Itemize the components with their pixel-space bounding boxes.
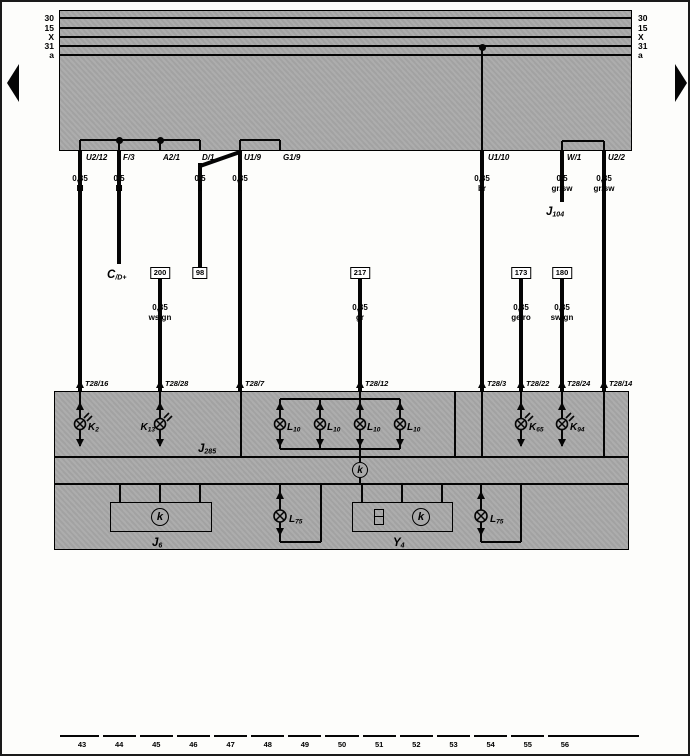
track-ruler-gap <box>396 734 400 739</box>
wire-spec-label: 0,35ge/ro <box>511 303 531 322</box>
pin-label: G1/9 <box>283 153 300 162</box>
pin-bracket-stub <box>79 140 81 151</box>
track-reference-box: 200 <box>150 267 170 279</box>
component-stub <box>119 485 121 502</box>
track-reference-box: 217 <box>350 267 370 279</box>
wire <box>560 278 564 391</box>
terminal-arrow-icon <box>517 380 525 388</box>
wire-spec-label: 0,35br <box>474 174 490 193</box>
junction-dot <box>116 137 123 144</box>
lamp-label: L75 <box>490 509 503 527</box>
track-number: 56 <box>561 740 569 749</box>
track-ruler-gap <box>99 734 103 739</box>
pin-label: U2/2 <box>608 153 625 162</box>
right-continuation-arrow[interactable] <box>675 64 687 102</box>
bus-line <box>59 36 632 38</box>
wire-spec-label: 0,5gr/sw <box>552 174 573 193</box>
pin-label: A2/1 <box>163 153 180 162</box>
arrow-down-icon <box>156 439 164 447</box>
arrow-up-icon <box>396 402 404 410</box>
connector-k-icon: k <box>352 462 368 478</box>
wire <box>358 278 362 391</box>
arrow-up-icon <box>76 402 84 410</box>
track-ruler-gap <box>284 734 288 739</box>
terminal-arrow-icon <box>558 380 566 388</box>
junction-dot <box>157 137 164 144</box>
connector-k-icon: k <box>151 508 169 526</box>
component-box <box>352 502 453 532</box>
diagram-layer: 30301515XX3131aaU2/12F/3A2/1D/1U1/9G1/9U… <box>2 2 690 756</box>
track-number: 53 <box>449 740 457 749</box>
lamp-label: K65 <box>529 417 543 435</box>
lamp-loop <box>320 485 322 542</box>
block-divider <box>54 483 629 485</box>
lamp-label: K2 <box>88 417 99 435</box>
terminal-label: T28/3 <box>487 379 506 388</box>
track-reference-box: 98 <box>192 267 207 279</box>
through-wire <box>481 392 483 457</box>
track-number: 52 <box>412 740 420 749</box>
track-ruler-gap <box>470 734 474 739</box>
track-number: 51 <box>375 740 383 749</box>
cluster-section-divider <box>240 392 241 457</box>
k-feed <box>359 478 361 485</box>
pin-bracket-stub <box>603 141 605 151</box>
pin-label: U1/9 <box>244 153 261 162</box>
l10-feed <box>359 449 361 457</box>
arrow-up-icon <box>477 491 485 499</box>
terminal-arrow-icon <box>236 380 244 388</box>
lamp-label: K13 <box>129 417 155 435</box>
pin-bracket <box>240 139 280 141</box>
track-ruler-gap <box>136 734 140 739</box>
track-ruler-gap <box>210 734 214 739</box>
bus-label-right: 30 <box>638 13 647 23</box>
pin-bracket <box>562 140 604 142</box>
wire <box>117 151 121 264</box>
track-number: 55 <box>524 740 532 749</box>
pin-bracket-stub <box>199 140 201 151</box>
bus-line <box>59 54 632 56</box>
left-continuation-arrow[interactable] <box>7 64 19 102</box>
wiring-diagram-page: 30301515XX3131aaU2/12F/3A2/1D/1U1/9G1/9U… <box>0 0 690 756</box>
l10-feed <box>359 392 361 399</box>
wire-spec-label: 0,35li <box>232 174 248 193</box>
track-number: 44 <box>115 740 123 749</box>
pin-label: U2/12 <box>86 153 107 162</box>
wire-spec-label: 0,35sw/gn <box>551 303 574 322</box>
component-stub <box>361 485 363 502</box>
track-ruler-gap <box>173 734 177 739</box>
track-ruler-gap <box>544 734 548 739</box>
connector-k-icon: k <box>412 508 430 526</box>
track-number: 54 <box>486 740 494 749</box>
track-number: 48 <box>264 740 272 749</box>
wire-spec-label: 0,35gr <box>352 303 368 322</box>
track-ruler-gap <box>433 734 437 739</box>
track-reference-box: 180 <box>552 267 572 279</box>
track-ruler-gap <box>507 734 511 739</box>
lamp-label: L75 <box>289 509 302 527</box>
bus-label-right: a <box>638 50 643 60</box>
pin-bracket <box>80 139 200 141</box>
harness-band <box>59 10 632 151</box>
track-number: 45 <box>152 740 160 749</box>
terminal-label: T28/7 <box>245 379 264 388</box>
bus-line <box>59 45 632 47</box>
component-box-label: Y4 <box>393 533 405 551</box>
wire-spec-label: 0,35ws/gn <box>149 303 172 322</box>
terminal-arrow-icon <box>156 380 164 388</box>
component-stub <box>159 485 161 502</box>
clock-icon <box>374 516 384 525</box>
terminal-label: T28/16 <box>85 379 108 388</box>
arrow-up-icon <box>356 402 364 410</box>
arrow-down-icon <box>276 439 284 447</box>
junction-dot <box>479 44 486 51</box>
terminal-label: T28/14 <box>609 379 632 388</box>
component-box-label: J6 <box>152 533 162 551</box>
pin-bracket-stub <box>561 141 563 151</box>
arrow-up-icon <box>316 402 324 410</box>
arrow-down-icon <box>76 439 84 447</box>
track-ruler-line <box>60 735 639 737</box>
terminal-label: T28/24 <box>567 379 590 388</box>
lamp-loop <box>520 485 522 542</box>
arrow-up-icon <box>276 491 284 499</box>
pin-label: U1/10 <box>488 153 509 162</box>
track-number: 46 <box>189 740 197 749</box>
arrow-down-icon <box>316 439 324 447</box>
lamp-loop <box>481 541 521 543</box>
arrow-down-icon <box>356 439 364 447</box>
terminal-arrow-icon <box>478 380 486 388</box>
bus-label-left: a <box>35 50 54 60</box>
pin-label: F/3 <box>123 153 135 162</box>
arrow-up-icon <box>558 402 566 410</box>
lamp-label: K94 <box>570 417 584 435</box>
wire-spec-label: 0,5bl <box>113 174 124 193</box>
l10-bus <box>280 398 400 400</box>
through-wire <box>603 392 605 457</box>
arrow-up-icon <box>276 402 284 410</box>
arrow-down-icon <box>558 439 566 447</box>
terminal-label: T28/22 <box>526 379 549 388</box>
block-divider <box>54 456 629 458</box>
lamp-label: L10 <box>407 417 420 435</box>
component-stub <box>441 485 443 502</box>
track-number: 50 <box>338 740 346 749</box>
lamp-loop <box>280 541 321 543</box>
pin-label: W/1 <box>567 153 581 162</box>
track-number: 49 <box>301 740 309 749</box>
bus-line <box>59 17 632 19</box>
bus-line <box>59 27 632 29</box>
control-unit-j104-label: J104 <box>546 202 564 220</box>
wire <box>519 278 523 391</box>
arrow-up-icon <box>517 402 525 410</box>
terminal-label: T28/12 <box>365 379 388 388</box>
component-stub <box>199 485 201 502</box>
cluster-j285-label: J285 <box>198 439 216 457</box>
lamp-label: L10 <box>367 417 380 435</box>
arrow-down-icon <box>396 439 404 447</box>
component-stub <box>401 485 403 502</box>
arrow-up-icon <box>156 402 164 410</box>
wire-spec-label: 0,35gr/sw <box>594 174 615 193</box>
arrow-down-icon <box>517 439 525 447</box>
cluster-section-divider <box>454 392 455 457</box>
track-number: 43 <box>78 740 86 749</box>
track-reference-box: 173 <box>511 267 531 279</box>
terminal-arrow-icon <box>600 380 608 388</box>
bus-tap-wire <box>481 47 483 151</box>
track-ruler-gap <box>321 734 325 739</box>
wire-spec-label: 0,35bl <box>72 174 88 193</box>
track-ruler-gap <box>359 734 363 739</box>
track-number: 47 <box>226 740 234 749</box>
terminal-arrow-icon <box>76 380 84 388</box>
lamp-label: L10 <box>327 417 340 435</box>
terminal-label: T28/28 <box>165 379 188 388</box>
l10-bus <box>280 448 400 450</box>
generator-dplus-label: C/D+ <box>107 265 126 283</box>
track-ruler-gap <box>247 734 251 739</box>
wire <box>158 278 162 391</box>
bus-label-left: 30 <box>35 13 54 23</box>
lamp-label: L10 <box>287 417 300 435</box>
pin-bracket-stub <box>279 140 281 151</box>
terminal-arrow-icon <box>356 380 364 388</box>
wire-spec-label: 0,5li <box>194 174 205 193</box>
